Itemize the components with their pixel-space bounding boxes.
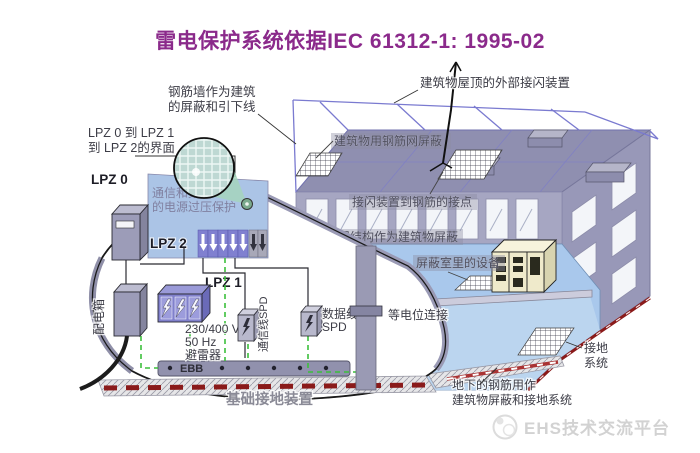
slide: 雷电保护系统依据IEC 61312-1: 1995-02	[0, 0, 700, 453]
label-equipotential: 等电位连接	[388, 307, 448, 322]
page-title: 雷电保护系统依据IEC 61312-1: 1995-02	[155, 29, 545, 53]
label-distribution-box: 配电箱	[91, 299, 106, 335]
label-data-spd-2: SPD	[322, 320, 347, 334]
data-spd	[301, 306, 322, 336]
label-arrester-2: 50 Hz	[185, 335, 216, 349]
bonding-pipe	[356, 246, 376, 390]
label-comm-spd: 通信线SPD	[256, 296, 270, 352]
label-lpz-interface-2: 到 LPZ 2的界面	[88, 140, 175, 155]
label-earthing-system-1: 接地	[584, 340, 608, 355]
lens-highlight	[192, 168, 200, 176]
label-arrester-3: 避雷器	[185, 348, 221, 362]
magnifier-target-dot	[245, 202, 249, 206]
label-lpz2: LPZ 2	[150, 236, 187, 251]
label-arrester-1: 230/400 V	[185, 322, 240, 336]
label-underground-rebar-1: 地下的钢筋用作	[452, 377, 536, 392]
watermark-logo-dot	[497, 418, 504, 425]
spd-modules-gray	[249, 230, 267, 257]
watermark: EHS技术交流平台	[494, 416, 670, 439]
label-earthing-system-2: 系统	[584, 356, 608, 370]
label-roof-mesh-shield: 建筑物用钢筋网屏蔽	[334, 133, 442, 148]
label-rebar-wall-1: 钢筋墙作为建筑	[168, 84, 256, 99]
label-lpz0: LPZ 0	[91, 172, 128, 187]
label-rebar-wall-2: 的屏蔽和引下线	[168, 99, 256, 114]
bonding-clamp	[350, 306, 382, 316]
label-lpz1: LPZ 1	[205, 275, 242, 290]
power-arrester	[158, 285, 210, 322]
label-air-term-joint: 接闪装置到钢筋的接点	[352, 194, 472, 209]
label-roof-air-termination: 建筑物屋顶的外部接闪装置	[420, 75, 570, 90]
label-foundation-earthing: 基础接地装置	[225, 390, 313, 408]
label-lpz-interface-1: LPZ 0 到 LPZ 1	[88, 126, 174, 140]
magnifier-lens	[174, 138, 234, 198]
label-ebb: EBB	[180, 363, 203, 375]
label-comm-surge-2: 的电源过压保护	[152, 199, 236, 214]
watermark-text: EHS技术交流平台	[524, 418, 670, 438]
label-shielded-room: 屏蔽室里的设备	[416, 255, 500, 270]
label-underground-rebar-2: 建筑物屏蔽和接地系统	[452, 392, 572, 407]
comm-spd	[238, 309, 259, 341]
lightning-protection-diagram: 雷电保护系统依据IEC 61312-1: 1995-02	[0, 0, 700, 453]
